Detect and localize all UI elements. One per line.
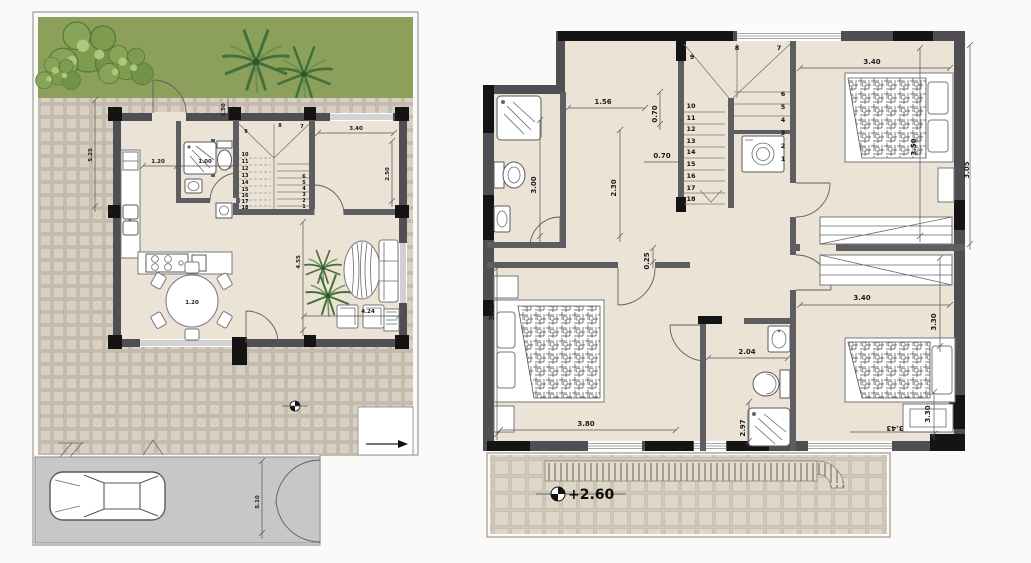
- dimension-label: 3.30: [930, 313, 938, 330]
- dimension-label: 4.24: [361, 309, 375, 315]
- wardrobe-strip: [820, 217, 952, 244]
- shower-icon: [184, 142, 216, 174]
- pillow: [932, 346, 952, 394]
- dimension-label: 2.04: [738, 348, 755, 356]
- nightstand: [938, 168, 954, 202]
- stair-number: 6: [302, 174, 306, 180]
- dimension-label: 3.50: [910, 138, 918, 155]
- corner-basin-icon: [216, 203, 232, 218]
- toilet-icon: [494, 162, 525, 188]
- stair-number: 4: [302, 186, 306, 192]
- stair-number: 3: [781, 129, 786, 137]
- bed-mattress: [848, 342, 930, 398]
- dimension-label: 3.30: [924, 405, 932, 422]
- armchair: [337, 305, 358, 328]
- stair-number: 6: [781, 90, 786, 98]
- shower-icon: [748, 408, 790, 446]
- stair-number: 14: [686, 148, 696, 156]
- stair-number: 13: [686, 137, 695, 145]
- stair-number: 10: [686, 102, 696, 110]
- stair-number: 2: [302, 198, 306, 204]
- dimension-label: 1.00: [198, 159, 212, 165]
- dimension-label: 3.80: [577, 420, 594, 428]
- upper-floor-plan: +2.60: [483, 31, 973, 537]
- stair-number: 15: [686, 160, 696, 168]
- stair-number: 5: [781, 103, 786, 111]
- dimension-label: 1.20: [151, 159, 165, 165]
- dimension-label: 3.40: [853, 294, 870, 302]
- toilet-icon: [753, 370, 790, 398]
- window: [588, 441, 642, 451]
- dimension-label: 1.56: [594, 98, 611, 106]
- dimension-label: 2.97: [739, 419, 747, 436]
- stair-number: 16: [686, 172, 696, 180]
- dimension-label: 2.50: [385, 167, 391, 181]
- stair-number: 18: [686, 195, 696, 203]
- stair-number: 9: [244, 129, 248, 135]
- dimension-label: 3.43: [886, 424, 903, 432]
- washbasin-icon: [768, 326, 790, 352]
- pillow: [928, 120, 948, 152]
- stair-number: 13: [242, 173, 249, 179]
- dimension-label: 0.70: [651, 105, 659, 122]
- window: [737, 31, 841, 41]
- nightstand: [494, 276, 518, 298]
- stair-number: 10: [242, 152, 249, 158]
- pillow: [497, 352, 515, 388]
- stair-number: 11: [242, 159, 249, 165]
- dimension-label: 5.10: [255, 495, 261, 509]
- dimension-label: 2.30: [610, 179, 618, 196]
- washbasin-icon: [494, 206, 510, 232]
- window: [399, 243, 407, 303]
- dimension-label: 3.40: [349, 126, 363, 132]
- wardrobe-strip: [820, 255, 952, 285]
- dimension-label: 5.25: [88, 148, 94, 162]
- entry-porch: [358, 407, 413, 455]
- pillow: [497, 312, 515, 348]
- stair-number: 8: [278, 123, 282, 129]
- dimension-label: 3.85: [488, 303, 496, 320]
- window: [694, 441, 726, 451]
- stair-number: 3: [302, 192, 306, 198]
- dimension-label: 1.20: [185, 300, 199, 306]
- rug: [344, 241, 380, 299]
- washing-machine-icon: [742, 136, 784, 172]
- pergola-strip: [545, 461, 817, 481]
- fridge-icon: [123, 152, 138, 170]
- dimension-label: 3.00: [530, 176, 538, 193]
- pillow: [928, 82, 948, 114]
- stair-number: 9: [690, 53, 695, 61]
- shower-icon: [497, 96, 541, 140]
- stair-number: 1: [781, 155, 786, 163]
- stair-number: 7: [777, 44, 782, 52]
- dimension-label: 0.25: [643, 252, 651, 269]
- stair-number: 12: [242, 166, 249, 172]
- stair-number: 18: [242, 205, 249, 211]
- dimension-label: 3.40: [863, 58, 880, 66]
- stair-number: 5: [302, 180, 306, 186]
- stair-number: 14: [242, 180, 249, 186]
- stair-number: 8: [735, 44, 740, 52]
- driveway: [35, 443, 320, 543]
- stair-number: 1: [302, 204, 306, 210]
- stair-number: 4: [781, 116, 786, 124]
- floor-plan-drawing: 5.251.501.201.003.402.504.551.204.245.10…: [0, 0, 1031, 563]
- window: [808, 441, 892, 451]
- stove-icon: [146, 254, 188, 272]
- window: [330, 113, 393, 121]
- stair-number: 11: [686, 114, 696, 122]
- stair-number: 12: [686, 125, 695, 133]
- car: [50, 472, 165, 520]
- level-label: +2.60: [568, 487, 615, 503]
- dimension-label: 3.05: [963, 161, 971, 178]
- tv-bench: [384, 309, 399, 331]
- stair-number: 17: [686, 184, 695, 192]
- dimension-label: 4.55: [296, 255, 302, 269]
- stair-number: 7: [300, 124, 304, 130]
- stair-number: 2: [781, 142, 786, 150]
- sofa: [379, 240, 398, 302]
- dimension-label: 0.70: [653, 152, 670, 160]
- terrace: +2.60: [487, 453, 890, 537]
- dimension-label: 1.50: [221, 103, 227, 117]
- washbasin-icon: [185, 179, 202, 193]
- floor-plan-sheet: 5.251.501.201.003.402.504.551.204.245.10…: [0, 0, 1031, 563]
- ground-floor-plan: 5.251.501.201.003.402.504.551.204.245.10…: [33, 12, 418, 545]
